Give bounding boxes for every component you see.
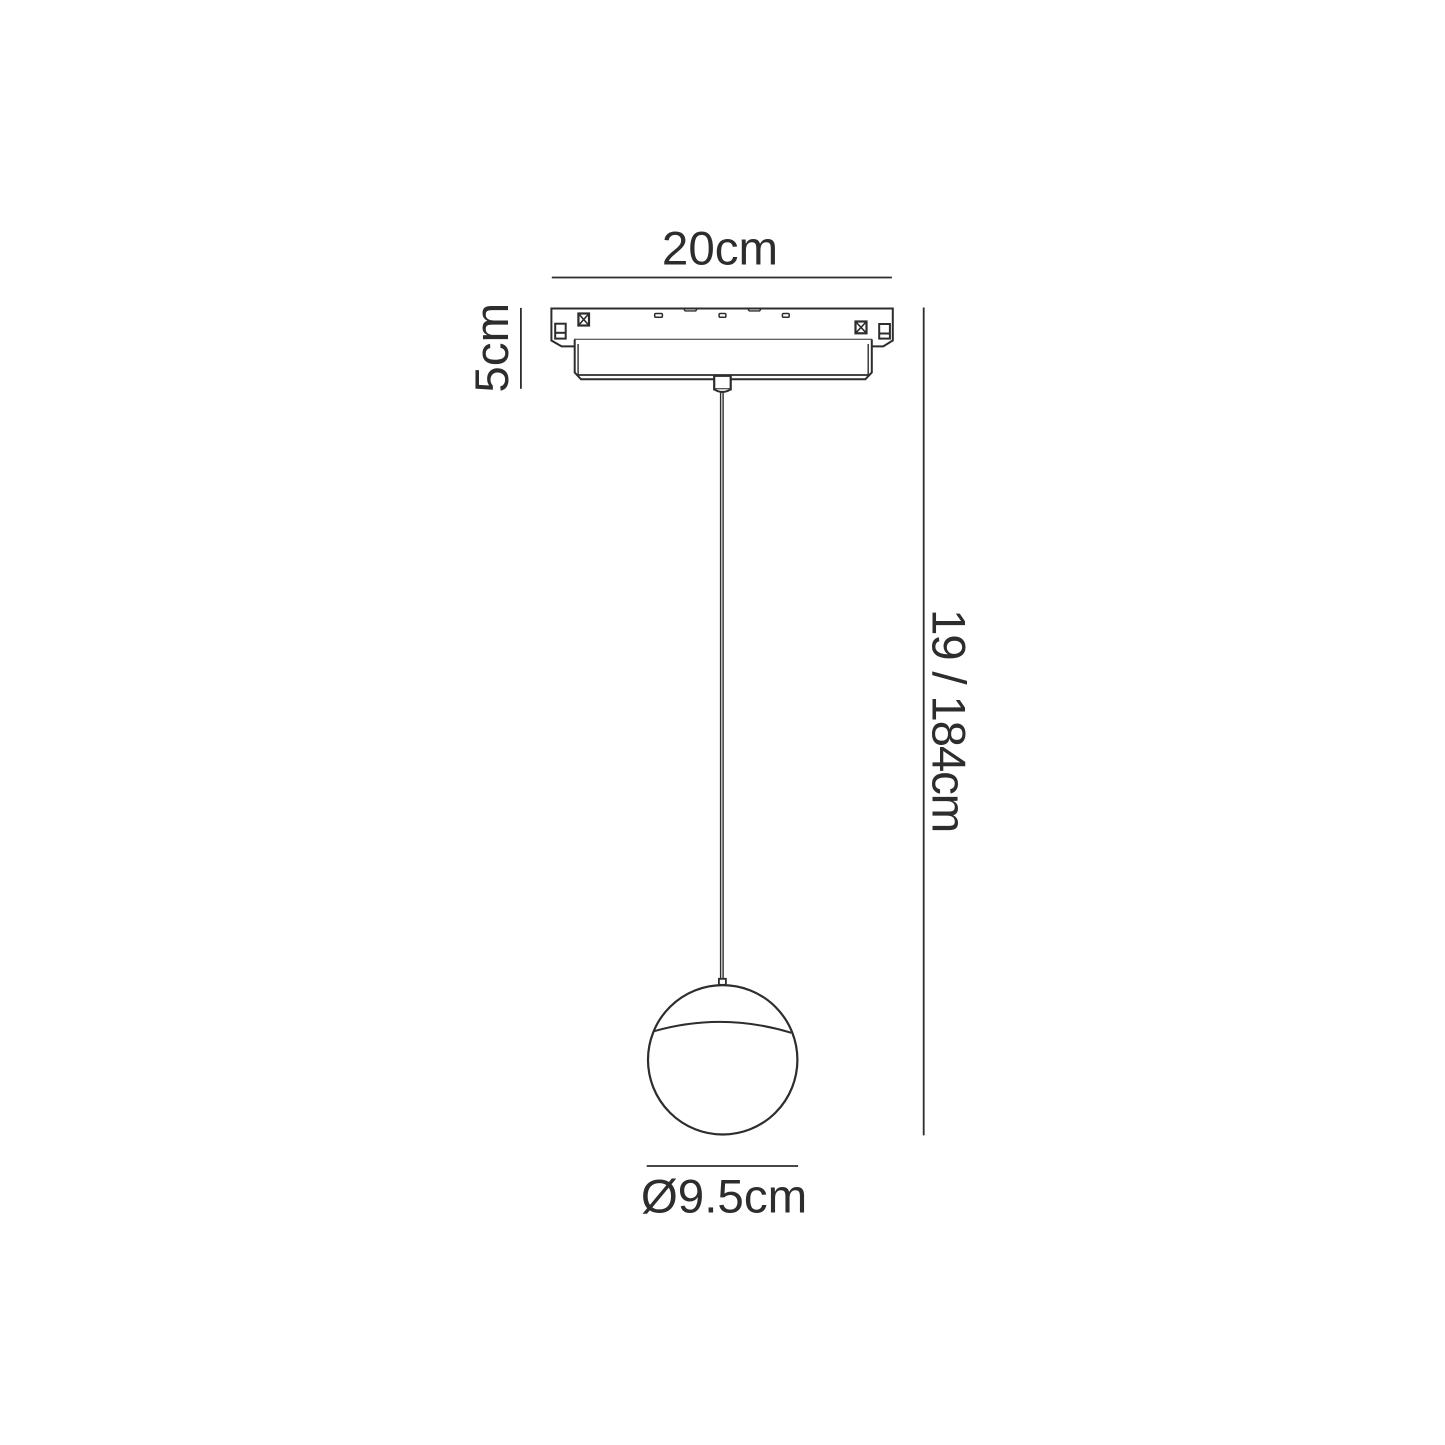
svg-text:19 / 184cm: 19 / 184cm — [922, 609, 975, 832]
svg-text:Ø9.5cm: Ø9.5cm — [641, 1171, 807, 1224]
svg-text:20cm: 20cm — [662, 223, 778, 276]
svg-text:5cm: 5cm — [466, 303, 519, 393]
